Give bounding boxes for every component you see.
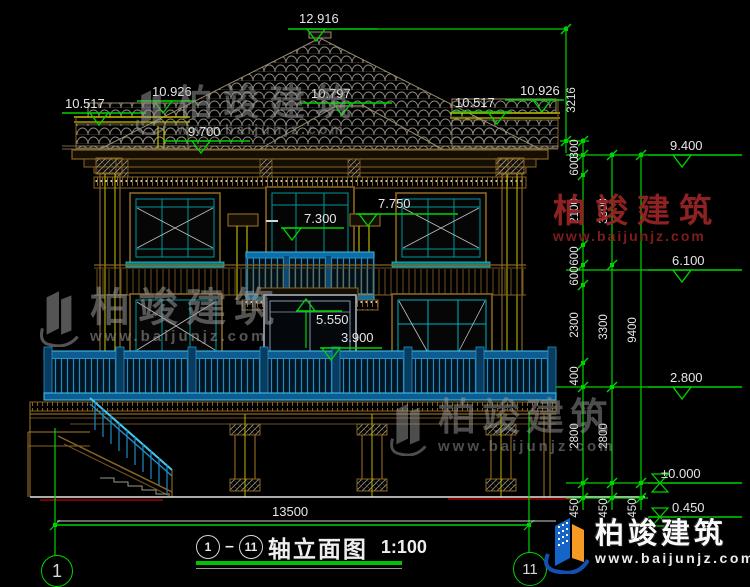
title-axis-end-circle: 11 — [239, 535, 263, 559]
window-lower-left — [130, 294, 222, 358]
pier — [357, 414, 387, 497]
elevation-value: 10.926 — [152, 84, 192, 99]
title-underline-green — [196, 561, 402, 565]
dimension-value: 9400 — [627, 317, 639, 343]
stairs — [28, 398, 172, 497]
dimension-value: 300 — [569, 139, 581, 158]
dimension-value: 3216 — [566, 87, 578, 113]
elevation-value: 9.700 — [188, 124, 221, 139]
cad-elevation-screenshot: { "colors": { "dimension_green": "#00d40… — [0, 0, 750, 583]
floor-band — [94, 265, 526, 297]
elevation-value: 10.797 — [311, 86, 351, 101]
brand-logo-text: 柏竣建筑 — [595, 519, 750, 551]
title-axis-start-circle: 1 — [196, 535, 220, 559]
elevation-value: 5.550 — [316, 312, 349, 327]
dimension-value: 600 — [569, 156, 581, 175]
elevation-value: 12.916 — [299, 11, 339, 26]
dimension-value: 2800 — [598, 423, 610, 449]
elevation-value: 10.517 — [65, 96, 105, 111]
axis-bubble-1-label: 1 — [52, 561, 62, 582]
elevation-value: 2.800 — [670, 370, 703, 385]
elevation-drawing: 3216300600210060060023004002800450330033… — [0, 0, 750, 583]
axis-bubble-11: 11 — [513, 552, 547, 586]
piers — [30, 402, 550, 497]
overall-width-dimension: 13500 — [272, 504, 308, 519]
dimension-value: 3300 — [598, 198, 610, 224]
dimension-value: 400 — [569, 366, 581, 385]
drawing-title: 1 – 11 轴立面图 1:100 — [196, 530, 427, 564]
axis-bubble-1: 1 — [41, 555, 73, 587]
deck-railing — [44, 347, 556, 400]
elevation-value: ±0.000 — [661, 466, 701, 481]
dimension-value: 600 — [569, 266, 581, 285]
brand-logo-icon — [543, 512, 589, 574]
dimension-value: 2300 — [569, 312, 581, 338]
elevation-value: 7.750 — [378, 196, 411, 211]
ground-line — [30, 497, 645, 500]
first-floor-windows — [130, 294, 492, 359]
brand-logo-url: www.baijunjz.com — [595, 551, 750, 566]
elevation-value: 3.900 — [341, 330, 374, 345]
pier — [230, 414, 260, 497]
title-dash: – — [225, 538, 234, 556]
dimension-value: 2800 — [569, 423, 581, 449]
eaves — [72, 150, 548, 188]
brand-logo: 柏竣建筑 www.baijunjz.com — [543, 512, 750, 574]
elevation-value: 7.300 — [304, 211, 337, 226]
elevation-value: 6.100 — [672, 253, 705, 268]
axis-bubble-11-label: 11 — [522, 561, 538, 578]
title-axis-end: 11 — [245, 540, 258, 554]
title-axis-start: 1 — [205, 540, 212, 554]
title-text: 轴立面图 — [268, 530, 368, 564]
dimension-value: 2100 — [569, 198, 581, 224]
dimension-value: 3300 — [598, 314, 610, 340]
dimension-value: 600 — [569, 246, 581, 265]
elevation-value: 9.400 — [670, 138, 703, 153]
dimension-chains: 3216300600210060060023004002800450330033… — [561, 24, 646, 518]
elevation-value: 10.926 — [520, 83, 560, 98]
window-upper-left — [126, 193, 224, 267]
title-scale: 1:100 — [381, 537, 427, 558]
title-underline-gray — [196, 568, 402, 569]
pier — [486, 414, 516, 497]
elevation-value: 10.517 — [455, 95, 495, 110]
